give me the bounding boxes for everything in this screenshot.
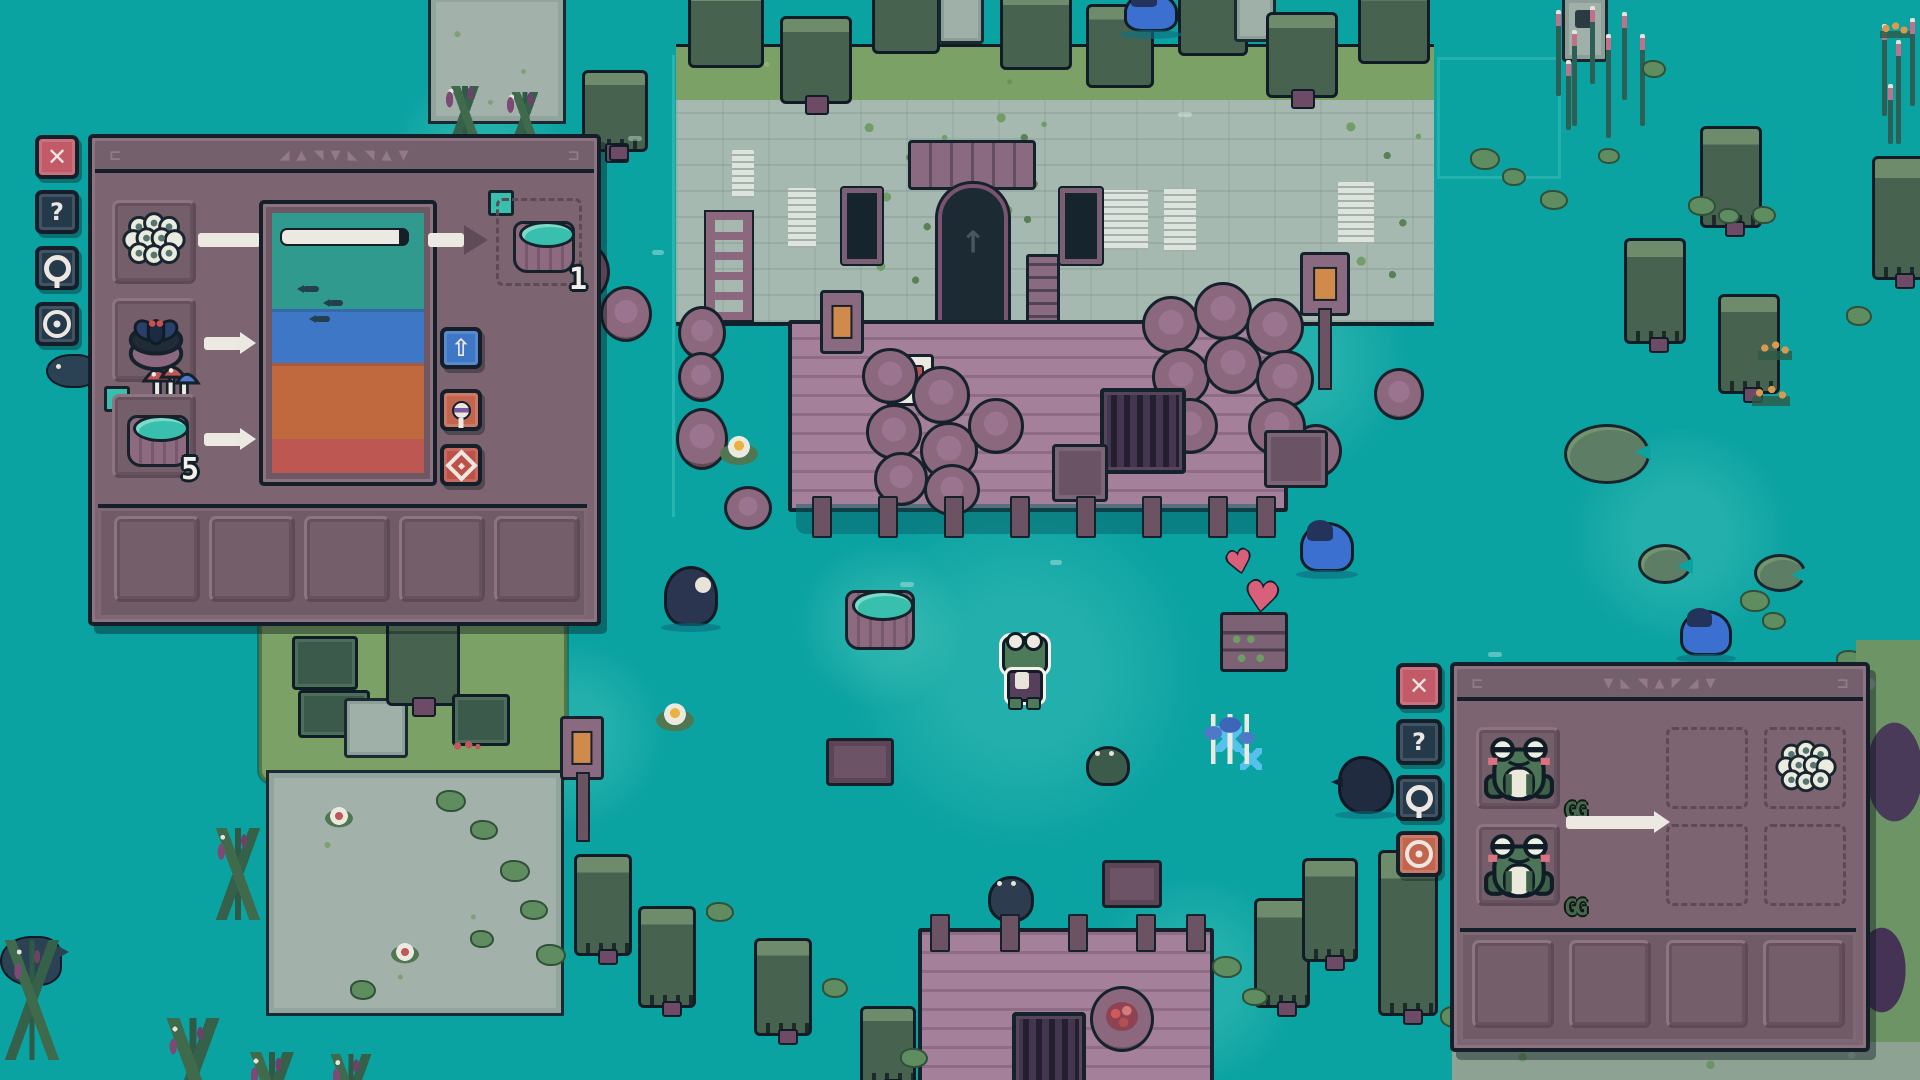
moss-clump	[900, 1048, 928, 1068]
help-button[interactable]: ?	[1396, 719, 1442, 765]
frog-icon	[1482, 732, 1556, 804]
cypress-tree	[1872, 156, 1920, 280]
focus-button[interactable]	[35, 302, 79, 346]
barrel	[1194, 282, 1252, 340]
ladder	[704, 210, 754, 322]
water-basin-icon	[127, 415, 189, 467]
stone-pillar	[1562, 0, 1608, 62]
moss-clump	[470, 820, 498, 840]
target-icon	[43, 310, 71, 338]
target-icon	[1405, 840, 1433, 868]
wooden-post	[576, 772, 590, 842]
grate-crate	[1100, 388, 1186, 474]
moss-clump	[500, 860, 530, 882]
water-basin	[845, 590, 915, 650]
white-flower	[324, 804, 354, 828]
crate	[1264, 430, 1328, 488]
moss-clump	[1242, 988, 1268, 1006]
fish-silhouette	[315, 316, 330, 322]
orange-flowers	[1758, 340, 1792, 360]
window	[842, 188, 882, 264]
dpost	[1186, 914, 1206, 952]
moss-clump	[1212, 956, 1242, 978]
progress-bar	[280, 228, 409, 246]
help-icon: ?	[50, 198, 64, 226]
lily-pad	[1564, 424, 1650, 484]
white-flower	[390, 940, 420, 964]
dpost	[878, 496, 898, 538]
barrel	[678, 352, 724, 402]
fish-silhouette	[303, 286, 319, 292]
panel-titlebar[interactable]: ⊏ ▼◣◥▲◤◢▼ ⊐	[1457, 669, 1863, 701]
fish-silhouette	[329, 300, 343, 306]
item-count: 5	[181, 452, 199, 487]
floor-mat	[826, 738, 894, 786]
reed	[1572, 30, 1577, 126]
dpost	[1208, 496, 1228, 538]
marsh-bird	[664, 566, 718, 626]
moss-clump	[1718, 208, 1740, 224]
cattail-plant	[0, 940, 64, 1060]
title-right-cap: ⊐	[1836, 674, 1849, 692]
red-berries	[450, 740, 484, 752]
arrow-head	[240, 428, 256, 450]
lily-pad	[1638, 544, 1692, 584]
tree-canopy	[688, 0, 764, 68]
title-left-cap: ⊏	[109, 146, 122, 164]
dpost	[944, 496, 964, 538]
moss-clump	[1502, 168, 1526, 186]
glasses-right-lens	[1024, 632, 1043, 651]
pin-button[interactable]	[35, 246, 79, 290]
inventory-slot[interactable]	[399, 516, 485, 602]
cypress-tree	[754, 938, 812, 1036]
frog-belly	[1015, 672, 1029, 689]
game-viewport: ↑ ♥♥ ✕ ? ⊏ ◢▲◥▼◣◥▲▼ ⊐	[0, 0, 1920, 1080]
stone-block	[344, 698, 408, 758]
tree-canopy	[1266, 12, 1338, 98]
moss-clump	[1642, 60, 1666, 78]
wall-poster	[1102, 190, 1148, 250]
region-line	[672, 55, 675, 517]
close-icon: ✕	[1409, 672, 1429, 700]
inventory-slot[interactable]	[1763, 940, 1845, 1028]
reed	[1556, 10, 1561, 96]
crow	[1338, 756, 1394, 814]
wall-poster	[1164, 188, 1196, 252]
wall-poster	[788, 188, 816, 248]
blue-frog	[1124, 0, 1178, 32]
close-button[interactable]: ✕	[35, 135, 79, 179]
tree-canopy	[872, 0, 940, 54]
pin-icon	[44, 255, 71, 282]
pond-cross-section	[259, 200, 437, 486]
water-ripple	[1488, 652, 1502, 657]
wall-poster	[1338, 182, 1374, 244]
frog-foot	[1026, 697, 1041, 710]
barrel	[912, 366, 970, 424]
reed	[1622, 12, 1627, 100]
frogspawn-icon	[122, 211, 186, 269]
panel-title: ▼◣◥▲◤◢▼	[1604, 676, 1723, 691]
parent-slot-frog[interactable]: GG	[1476, 727, 1560, 809]
blue-frog	[1300, 522, 1354, 572]
output-arrow-head	[464, 225, 488, 255]
orange-flowers	[1752, 384, 1790, 406]
cattail-plant	[318, 1054, 384, 1080]
inventory-slot[interactable]	[1472, 940, 1554, 1028]
player-character[interactable]	[996, 626, 1048, 710]
wall-poster	[732, 150, 754, 198]
door-arrow: ↑	[960, 226, 985, 261]
arrow	[204, 433, 242, 446]
pin-button[interactable]	[1396, 775, 1442, 821]
tree-canopy	[780, 16, 852, 104]
blue-mushrooms	[1200, 714, 1260, 764]
tree-canopy	[1358, 0, 1430, 64]
inventory-slot[interactable]	[304, 516, 390, 602]
stone-platform	[266, 770, 564, 1016]
reed	[1896, 40, 1901, 144]
panel-title: ◢▲◥▼◣◥▲▼	[280, 148, 416, 163]
moss-clump	[536, 944, 566, 966]
flow-line	[198, 233, 260, 247]
heart-icon: ♥	[1242, 576, 1288, 620]
gene-badge: GG	[1565, 896, 1586, 921]
dpost	[1256, 496, 1276, 538]
reed	[1566, 60, 1571, 130]
help-icon: ?	[1412, 728, 1426, 756]
orange-flowers	[1880, 22, 1910, 38]
water-ripple	[1050, 560, 1062, 565]
help-button[interactable]: ?	[35, 190, 79, 234]
dpost	[1142, 496, 1162, 538]
reed	[1590, 6, 1595, 84]
water-ripple	[1178, 112, 1192, 117]
offspring-slot[interactable]	[1666, 824, 1748, 906]
barrel	[1090, 986, 1154, 1052]
doorway[interactable]: ↑	[938, 184, 1008, 324]
dpost	[1010, 496, 1030, 538]
arrow	[1566, 816, 1656, 829]
water-layer-bottom	[272, 439, 424, 473]
tree-canopy	[1000, 0, 1072, 70]
barrel	[1204, 336, 1262, 394]
frog-icon	[1482, 829, 1556, 901]
moss-clump	[822, 978, 848, 998]
reed	[1640, 34, 1645, 126]
barrel	[724, 486, 772, 530]
mossy-furniture	[292, 636, 358, 690]
offspring-slot[interactable]	[1764, 727, 1846, 809]
dpost	[1136, 914, 1156, 952]
dpost	[1000, 914, 1020, 952]
stone-block	[938, 0, 984, 44]
close-icon: ✕	[47, 143, 67, 171]
inventory-slot[interactable]	[1569, 940, 1651, 1028]
sign-post	[820, 290, 864, 354]
inventory-slot[interactable]	[209, 516, 295, 602]
cypress-tree	[1624, 238, 1686, 344]
output-slot[interactable]: 1	[496, 198, 582, 286]
close-button[interactable]: ✕	[1396, 663, 1442, 709]
parent-slot-frog[interactable]: GG	[1476, 824, 1560, 906]
arrow-head	[240, 332, 256, 354]
frogspawn-icon	[1775, 739, 1837, 795]
moss-clump	[1688, 196, 1716, 216]
moss-clump	[706, 902, 734, 922]
dpost	[1068, 914, 1088, 952]
water-ripple	[652, 250, 664, 255]
moss-clump	[1470, 148, 1500, 170]
moss-clump	[1740, 590, 1770, 612]
title-left-cap: ⊏	[1471, 674, 1484, 692]
arrow	[204, 337, 242, 350]
diamond-icon	[445, 449, 478, 482]
grate-crate	[1012, 1012, 1086, 1080]
cypress-tree	[638, 906, 696, 1008]
reed	[1888, 84, 1893, 144]
shelf	[1220, 612, 1288, 672]
breeding-panel: ⊏ ▼◣◥▲◤◢▼ ⊐ GG	[1450, 662, 1870, 1052]
dpost	[930, 914, 950, 952]
dpost	[812, 496, 832, 538]
moss-clump	[470, 930, 494, 948]
lotus-flower	[716, 428, 762, 470]
dpost	[1076, 496, 1096, 538]
tree-canopy	[386, 614, 460, 706]
input-slot-basin[interactable]: 5	[112, 394, 196, 478]
cypress-tree	[860, 1006, 916, 1080]
up-arrow-icon: ⇧	[451, 334, 471, 362]
water-ripple	[900, 582, 914, 587]
water-basin-icon	[513, 221, 575, 273]
offspring-slot[interactable]	[1764, 824, 1846, 906]
wooden-post	[1318, 308, 1332, 390]
sign-post	[1300, 252, 1350, 316]
pushpin-icon	[452, 401, 471, 420]
crate	[1052, 444, 1108, 502]
sign-post	[560, 716, 604, 780]
raise-water-button[interactable]: ⇧	[440, 327, 482, 369]
door-lintel	[908, 140, 1036, 190]
barrel	[1374, 368, 1424, 420]
moss-clump	[436, 790, 466, 812]
input-slot-frogspawn[interactable]	[112, 200, 196, 284]
moss-clump	[520, 900, 548, 920]
water-layer-deep	[272, 363, 424, 442]
lotus-flower	[650, 698, 700, 734]
barrel	[600, 286, 652, 342]
moss-clump	[1540, 190, 1568, 210]
target-button[interactable]	[1396, 831, 1442, 877]
moss-clump	[1598, 148, 1620, 164]
pond-recipe-panel: ⊏ ◢▲◥▼◣◥▲▼ ⊐	[88, 134, 601, 626]
small-frog	[1086, 746, 1130, 786]
marker-button[interactable]	[440, 389, 482, 431]
moss-clump	[350, 980, 376, 1000]
mossy-furniture	[452, 694, 510, 746]
barrel	[866, 404, 922, 460]
flow-line	[428, 233, 464, 247]
reed	[1910, 18, 1915, 106]
drain-button[interactable]	[440, 444, 482, 486]
glasses-left-lens	[1006, 632, 1025, 651]
offspring-slot[interactable]	[1666, 727, 1748, 809]
window	[1060, 188, 1102, 264]
cypress-tree	[1302, 858, 1358, 962]
title-right-cap: ⊐	[567, 146, 580, 164]
moss-clump	[1762, 612, 1786, 630]
lily-pad	[1754, 554, 1806, 592]
inventory-slot[interactable]	[114, 516, 200, 602]
frog-foot	[1008, 697, 1023, 710]
pin-icon	[1406, 785, 1433, 812]
deck-shadow	[796, 504, 1274, 534]
moss-clump	[1752, 206, 1776, 224]
inventory-slot[interactable]	[494, 516, 580, 602]
cattail-plant	[148, 1018, 238, 1080]
reed	[1606, 34, 1611, 138]
moss-clump	[1846, 306, 1872, 326]
water-layer-mid	[272, 309, 424, 366]
barrel	[968, 398, 1024, 454]
barrel	[862, 348, 918, 404]
panel-titlebar[interactable]: ⊏ ◢▲◥▼◣◥▲▼ ⊐	[95, 141, 594, 173]
inventory-slot[interactable]	[1666, 940, 1748, 1028]
floor-mat	[1102, 860, 1162, 908]
water-ripple	[628, 136, 642, 141]
cattail-plant	[200, 828, 276, 920]
cattail-plant	[430, 86, 500, 138]
cypress-tree	[574, 854, 632, 956]
blue-frog	[1680, 610, 1732, 656]
cattail-plant	[232, 1052, 312, 1080]
output-count: 1	[569, 262, 587, 297]
barrel	[1142, 296, 1200, 354]
